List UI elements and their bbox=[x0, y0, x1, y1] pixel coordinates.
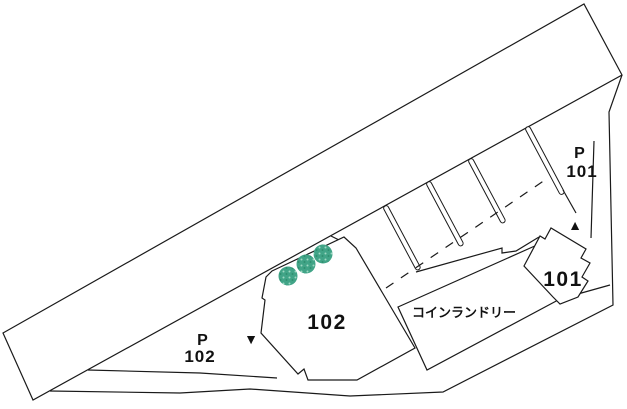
parking-101-number-label: 101 bbox=[566, 162, 597, 181]
entrance-101-path-line bbox=[563, 190, 576, 213]
entrance-marker-up-icon: ▲ bbox=[568, 217, 582, 233]
parking-divider bbox=[525, 126, 565, 195]
entrance-marker-down-icon: ▼ bbox=[244, 331, 258, 347]
parking-102-number-label: 102 bbox=[184, 347, 215, 366]
site-plan: P 101 P 102 102 101 コインランドリー ▼ ▲ bbox=[0, 0, 627, 409]
parking-divider bbox=[426, 181, 464, 247]
laundry-label: コインランドリー bbox=[412, 305, 516, 320]
parking-divider bbox=[468, 158, 506, 224]
tree-icon bbox=[279, 267, 298, 286]
walkway-line bbox=[88, 370, 277, 378]
tree-icon bbox=[314, 245, 333, 264]
building-101-label: 101 bbox=[543, 268, 583, 291]
building-102-label: 102 bbox=[307, 311, 347, 334]
tree-icon bbox=[297, 255, 316, 274]
parking-divider bbox=[383, 205, 421, 271]
stall-101-divider-line bbox=[591, 141, 594, 238]
parking-101-p-label: P bbox=[574, 145, 586, 162]
site-plan-svg: P 101 P 102 102 101 コインランドリー ▼ ▲ bbox=[0, 0, 627, 409]
